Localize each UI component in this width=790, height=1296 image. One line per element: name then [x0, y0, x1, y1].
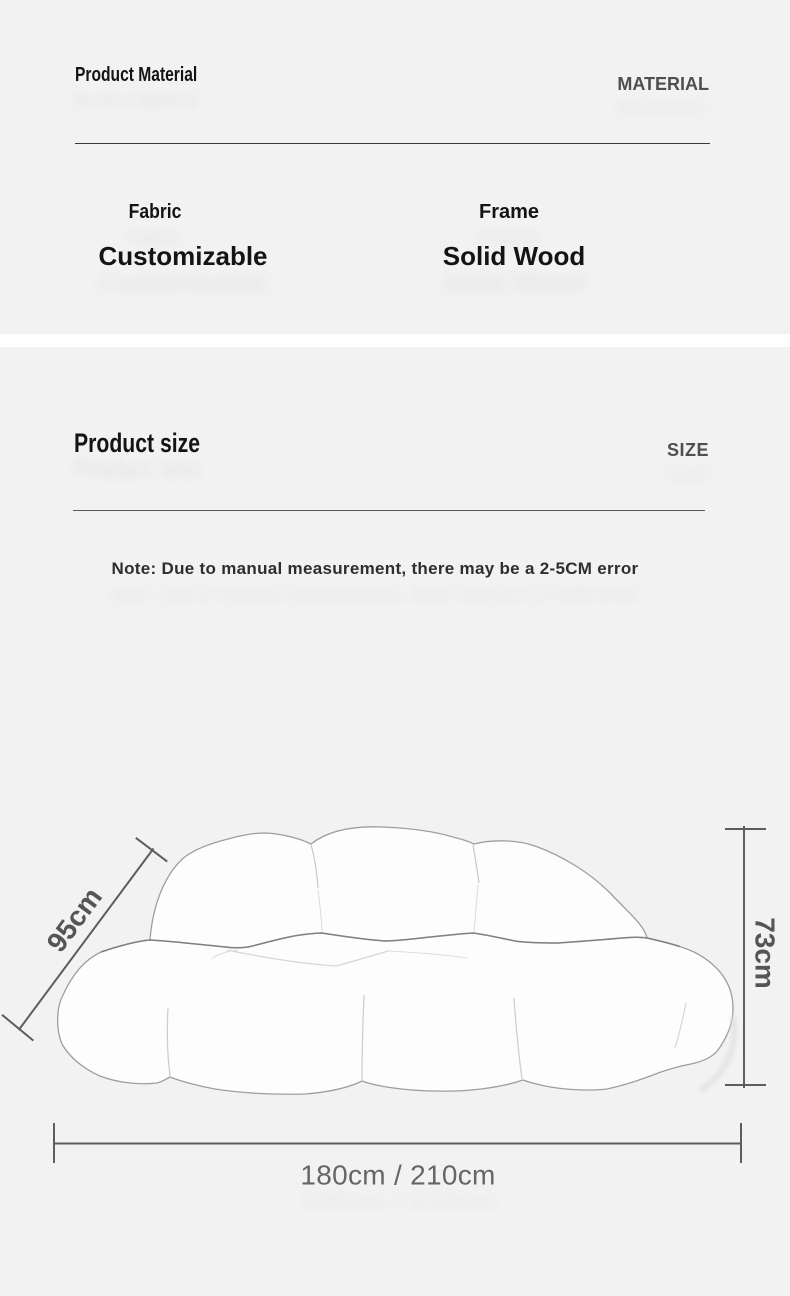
- svg-text:95cm: 95cm: [41, 882, 109, 958]
- svg-text:73cm: 73cm: [750, 917, 781, 989]
- svg-text:180cm / 210cm: 180cm / 210cm: [300, 1159, 495, 1190]
